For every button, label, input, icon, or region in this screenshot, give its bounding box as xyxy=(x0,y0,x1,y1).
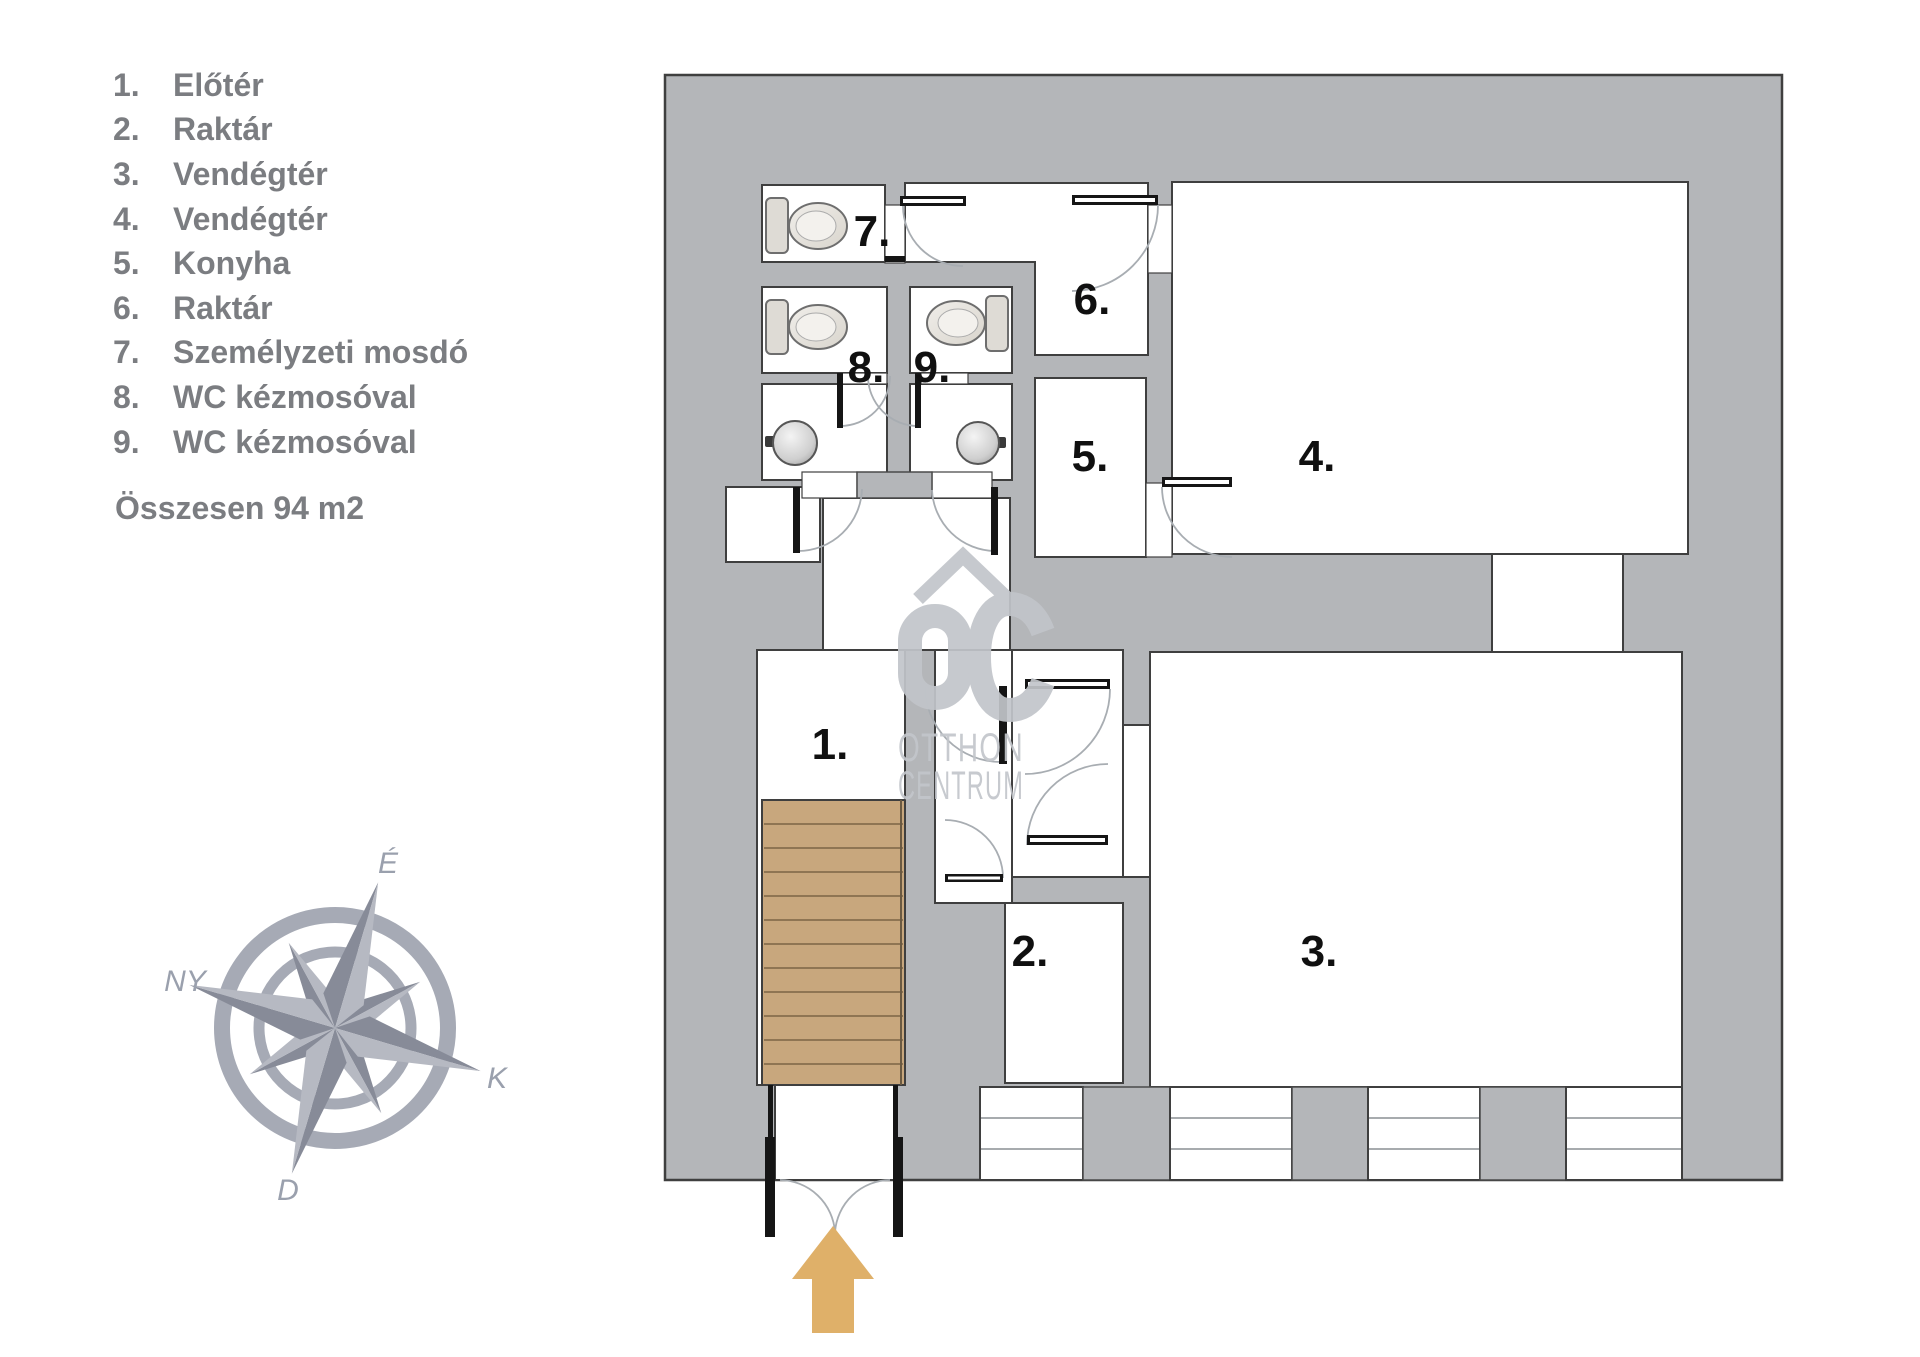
door-opening-room4 xyxy=(1146,483,1172,557)
anteroom-room3-gap xyxy=(1123,725,1150,877)
door-leaf xyxy=(837,373,843,428)
floor-plan: OTTHON CENTRUM 1. 2. 3. 4. 5. 6. 7. 8. 9… xyxy=(0,0,1920,1357)
door-opening-vestibule-right xyxy=(932,472,992,498)
room-label-9: 9. xyxy=(914,343,951,392)
window xyxy=(1368,1087,1480,1180)
staircase xyxy=(762,800,905,1085)
room-label-3: 3. xyxy=(1301,927,1338,976)
watermark-line2: CENTRUM xyxy=(898,764,1024,808)
room-label-6: 6. xyxy=(1074,275,1111,324)
entrance-passage xyxy=(775,1085,895,1180)
entrance-jamb xyxy=(768,1085,773,1137)
entrance-arrow-icon xyxy=(792,1226,874,1333)
wall-pier xyxy=(1292,1087,1368,1180)
door-opening-vestibule-left xyxy=(802,472,857,498)
window xyxy=(1566,1087,1682,1180)
entrance-jamb xyxy=(893,1085,898,1137)
entrance-door-arc xyxy=(780,1180,835,1232)
toilet xyxy=(766,300,847,354)
room-label-2: 2. xyxy=(1012,927,1049,976)
floorplan-page: 1.Előtér 2.Raktár 3.Vendégtér 4.Vendégté… xyxy=(0,0,1920,1357)
room-label-5: 5. xyxy=(1072,432,1109,481)
window xyxy=(980,1087,1083,1180)
entrance-door-arc xyxy=(835,1180,890,1232)
stairs-body xyxy=(762,800,905,1085)
room-label-8: 8. xyxy=(848,343,885,392)
toilet xyxy=(766,198,847,253)
window xyxy=(1170,1087,1292,1180)
wall-pier xyxy=(1480,1087,1566,1180)
passage-room4-room3 xyxy=(1492,554,1623,652)
room-4-guest-area xyxy=(1172,182,1688,554)
door-leaf xyxy=(793,487,800,553)
entrance-post xyxy=(893,1137,903,1237)
room-label-7: 7. xyxy=(854,207,891,256)
entrance-post xyxy=(765,1137,775,1237)
door-jamb xyxy=(885,256,905,262)
room-label-4: 4. xyxy=(1299,432,1336,481)
room-3-guest-area xyxy=(1150,652,1682,1087)
wall-pier xyxy=(1083,1087,1170,1180)
wall-tongue xyxy=(857,472,932,498)
door-leaf xyxy=(991,487,998,555)
window-band xyxy=(980,1087,1682,1180)
room-label-1: 1. xyxy=(812,720,849,769)
